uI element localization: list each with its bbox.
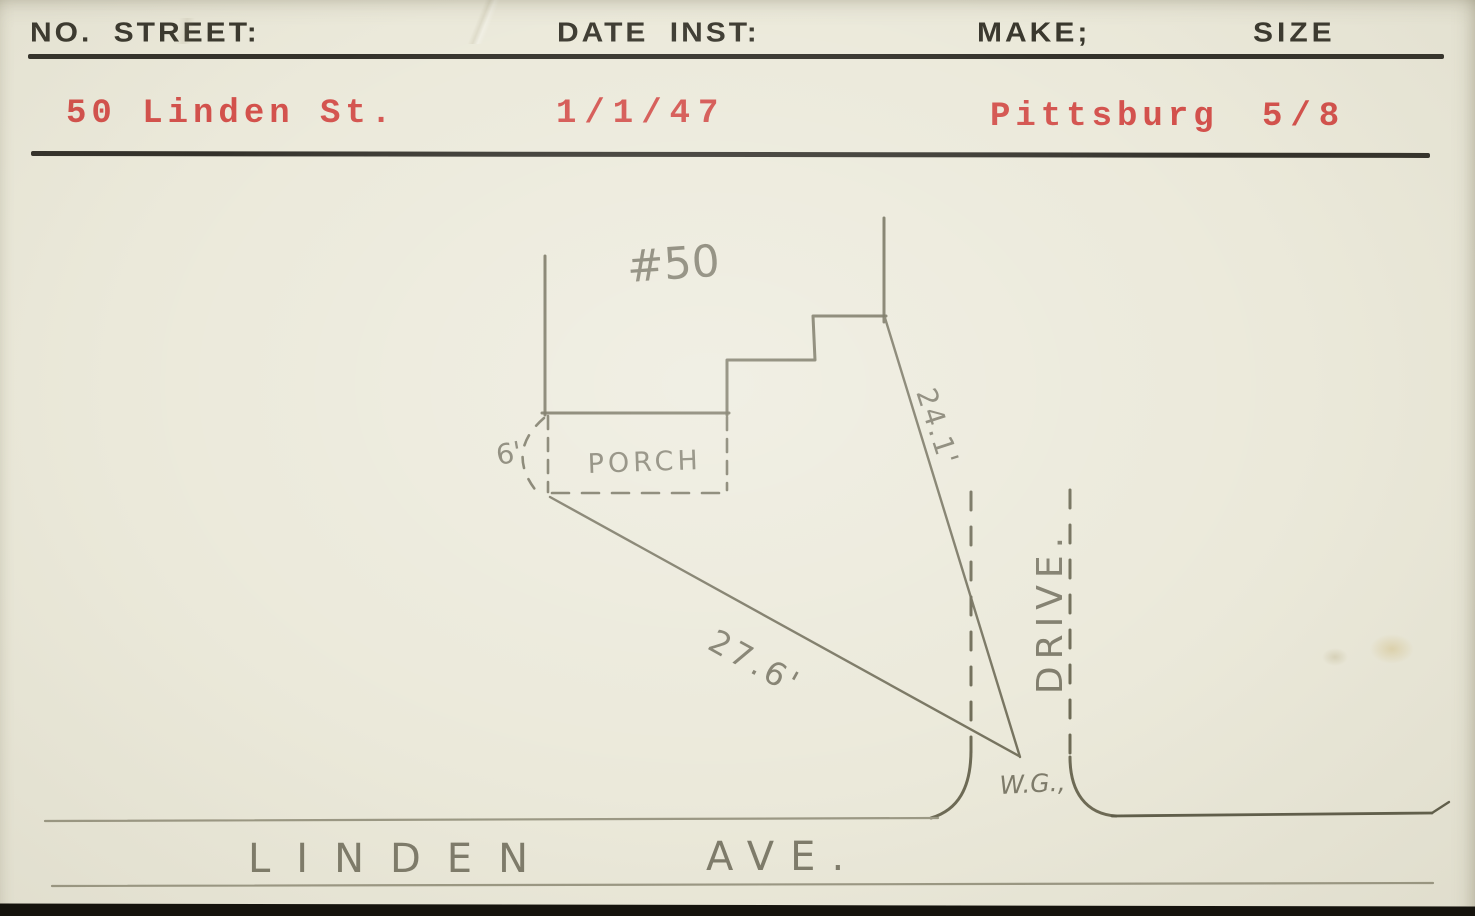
street-far-line — [52, 883, 1433, 886]
porch-label: PORCH — [587, 445, 702, 480]
offset-arc — [523, 418, 544, 492]
street-line-end-tick — [1432, 802, 1449, 813]
house-number-label: #50 — [625, 236, 721, 293]
drive-right-flare — [1070, 757, 1116, 816]
street-name-label: LINDEN — [248, 836, 554, 882]
dimension-line-house — [885, 318, 1020, 757]
paper-stain — [1322, 648, 1348, 666]
street-curb-line-right — [1112, 813, 1432, 816]
dimension-line-porch — [550, 497, 1019, 756]
curb-stop-label: W.G., — [999, 768, 1066, 800]
card-bottom-edge — [0, 903, 1475, 916]
building-step-walls — [727, 316, 886, 415]
utility-record-card: NO. STREET: DATE INST: MAKE; SIZE 50 Lin… — [0, 0, 1475, 916]
street-suffix-label: AVE. — [706, 834, 860, 880]
drive-label: DRIVE. — [1030, 530, 1071, 694]
plot-sketch: #50 PORCH 6' 24.1' 27.6' W.G., DRIVE. LI… — [0, 0, 1475, 916]
drive-left-flare — [931, 750, 971, 818]
offset-dimension-label: 6' — [493, 435, 524, 472]
paper-stain — [1370, 634, 1414, 664]
street-curb-line-left — [45, 818, 938, 821]
dimension-label-porch: 27.6' — [702, 622, 808, 704]
